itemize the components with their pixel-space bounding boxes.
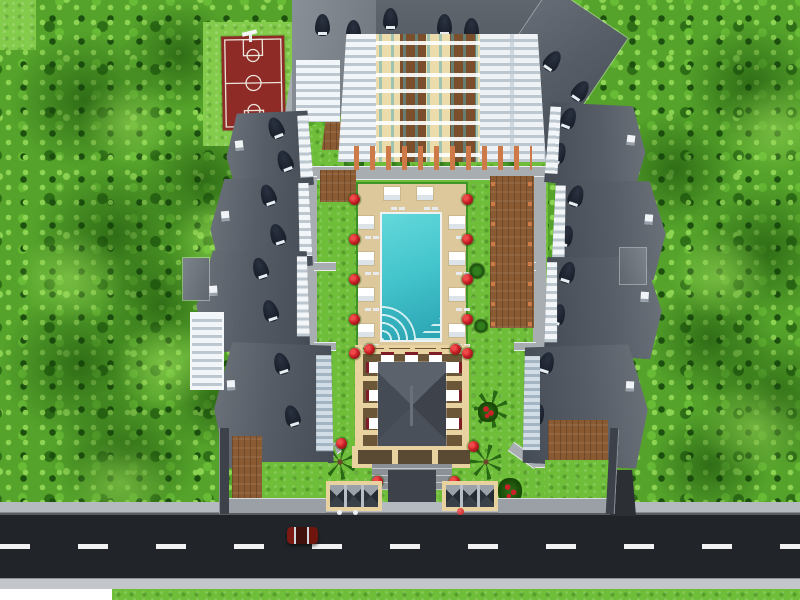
dormer-sill — [259, 274, 268, 280]
dormer-sill — [266, 201, 275, 207]
chimney — [209, 285, 218, 296]
chimney — [227, 380, 236, 390]
roof-dormer-window — [265, 115, 287, 141]
entrance-gate-pergola — [326, 481, 382, 511]
stair-tower — [183, 258, 209, 300]
gate-pyramid-cap — [480, 485, 494, 507]
flower-planter — [462, 348, 473, 359]
perimeter-wall — [498, 498, 612, 513]
sun-lounger — [417, 187, 433, 200]
sun-lounger — [358, 288, 374, 301]
roof-dormer-window — [271, 350, 292, 375]
white-margin — [0, 589, 112, 600]
dormer-sill — [274, 133, 283, 139]
bollard — [337, 510, 342, 515]
poolside-table — [446, 390, 462, 401]
sun-lounger — [358, 216, 374, 229]
roof-dormer-window — [281, 403, 302, 428]
roof-dormer-window — [258, 183, 279, 209]
flower-planter — [349, 274, 360, 285]
flower-planter — [468, 441, 479, 452]
fire-hydrant — [457, 508, 464, 515]
sun-lounger — [358, 324, 374, 337]
road-center-line — [0, 544, 800, 549]
clubhouse-roof — [378, 362, 446, 450]
sun-lounger — [449, 288, 465, 301]
gate-pyramid-cap — [446, 485, 460, 507]
flower-planter — [349, 194, 360, 205]
chimney — [645, 214, 654, 225]
gate-pyramid-cap — [364, 485, 378, 507]
aerial-render-scene — [0, 0, 800, 600]
flower-bush — [478, 402, 498, 422]
grass-area — [545, 460, 615, 502]
roof-dormer-window — [274, 148, 296, 174]
sun-lounger — [358, 252, 374, 265]
flower-planter — [364, 344, 375, 355]
sun-lounger — [384, 187, 400, 200]
bollard — [353, 510, 358, 515]
gate-pyramid-cap — [330, 485, 344, 507]
outer-balcony-block — [192, 314, 222, 388]
roof-dormer-window — [565, 183, 586, 209]
tree-canopy-highlight — [700, 380, 800, 475]
dormer-sill — [290, 421, 299, 427]
swimming-pool — [380, 212, 442, 342]
roof-dormer-window — [250, 256, 271, 282]
flower-planter — [336, 438, 347, 449]
dormer-sill — [280, 369, 289, 375]
roof-dormer-window — [557, 260, 578, 286]
chimney — [626, 381, 635, 391]
apartment-building-roof — [211, 337, 337, 469]
clubhouse-roof-ridge — [410, 386, 413, 426]
dormer-sill — [386, 26, 395, 29]
grass-verge — [112, 589, 800, 600]
car — [287, 527, 318, 544]
tree-canopy-highlight — [80, 80, 175, 165]
poolside-table — [446, 362, 462, 373]
poolside-table — [446, 418, 462, 429]
tree-canopy-highlight — [15, 230, 125, 325]
perimeter-wall — [229, 498, 326, 513]
flower-planter — [349, 234, 360, 245]
roof-dormer-window — [383, 8, 398, 30]
striped-facade — [376, 34, 480, 162]
flower-planter — [349, 314, 360, 325]
dormer-sill — [560, 278, 569, 284]
gate-pyramid-cap — [347, 485, 361, 507]
chimney — [221, 211, 230, 222]
sun-lounger — [449, 216, 465, 229]
gate-pyramid-cap — [463, 485, 477, 507]
small-tree — [473, 318, 489, 334]
pergola-posts — [491, 178, 495, 326]
dormer-sill — [539, 369, 548, 375]
wooden-deck — [548, 420, 608, 462]
basketball-hoop-post — [249, 34, 252, 42]
residential-tower-facade — [338, 34, 546, 162]
walkway-connector — [314, 262, 336, 271]
chimney — [626, 135, 635, 146]
side-annex-roof — [620, 248, 646, 284]
pool-steps-quarter — [382, 306, 416, 340]
flower-planter — [462, 234, 473, 245]
dormer-sill — [318, 32, 327, 35]
flower-planter — [462, 274, 473, 285]
sun-lounger — [449, 252, 465, 265]
roof-dormer-window — [260, 298, 281, 324]
roof-dormer-window — [267, 222, 288, 248]
dormer-sill — [561, 123, 570, 129]
entrance-gate-pergola — [442, 481, 498, 511]
pergola-post-row — [354, 146, 532, 170]
dormer-sill — [568, 201, 577, 207]
grass-area — [262, 462, 328, 502]
pergola-posts — [528, 178, 532, 326]
apartment-building-roof — [541, 250, 666, 360]
perimeter-wall — [219, 428, 229, 514]
chimney — [235, 140, 244, 151]
sun-lounger — [449, 324, 465, 337]
pool-corner-steps — [414, 318, 440, 340]
flower-planter — [450, 344, 461, 355]
roof-dormer-window — [437, 14, 452, 36]
dormer-sill — [268, 316, 277, 322]
flower-planter — [462, 194, 473, 205]
dormer-sill — [276, 240, 285, 246]
flower-planter — [462, 314, 473, 325]
dormer-sill — [283, 166, 292, 172]
roof-dormer-window — [315, 14, 330, 36]
tree-canopy-highlight — [670, 230, 770, 320]
balcony-facade — [480, 34, 546, 162]
lawn-corner-patch — [0, 0, 36, 50]
chimney — [640, 291, 649, 302]
flower-planter — [349, 348, 360, 359]
